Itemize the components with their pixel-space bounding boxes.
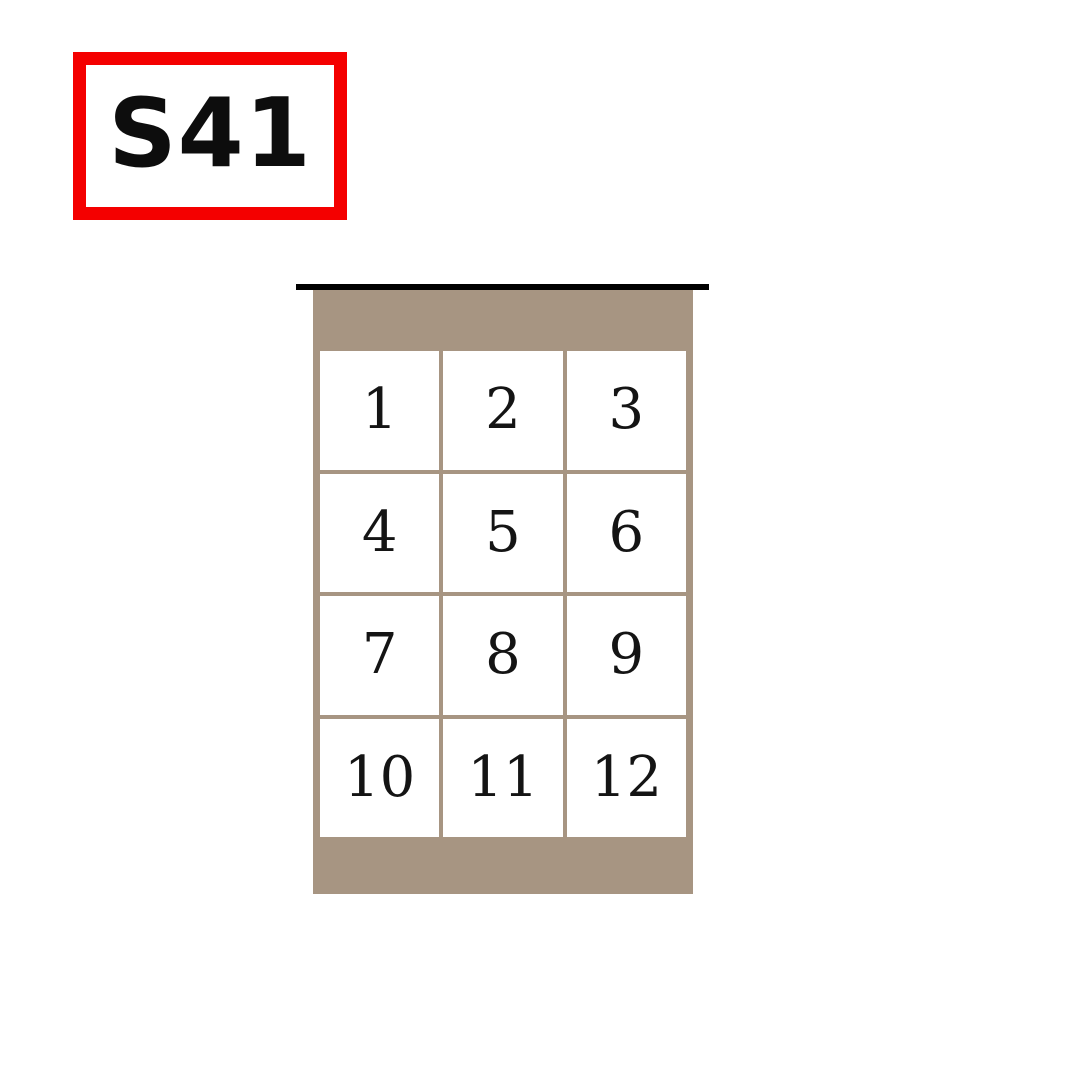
figure-label: S41 bbox=[108, 87, 312, 182]
figure-label-box: S41 bbox=[73, 52, 347, 220]
grid-cell: 7 bbox=[320, 596, 439, 715]
grid-cell: 5 bbox=[443, 474, 562, 593]
grid-cell: 1 bbox=[320, 351, 439, 470]
grid-cell: 9 bbox=[567, 596, 686, 715]
grid-cell: 6 bbox=[567, 474, 686, 593]
grid-cell: 8 bbox=[443, 596, 562, 715]
grid-cell: 10 bbox=[320, 719, 439, 838]
grid-cell: 11 bbox=[443, 719, 562, 838]
grid-cell: 4 bbox=[320, 474, 439, 593]
tan-panel: 1 2 3 4 5 6 7 8 9 10 11 12 bbox=[313, 290, 693, 894]
grid-cell: 3 bbox=[567, 351, 686, 470]
diagram-stage: S41 1 2 3 4 5 6 7 8 9 10 11 12 bbox=[0, 0, 1080, 1080]
number-grid: 1 2 3 4 5 6 7 8 9 10 11 12 bbox=[320, 351, 686, 837]
grid-cell: 12 bbox=[567, 719, 686, 838]
grid-cell: 2 bbox=[443, 351, 562, 470]
